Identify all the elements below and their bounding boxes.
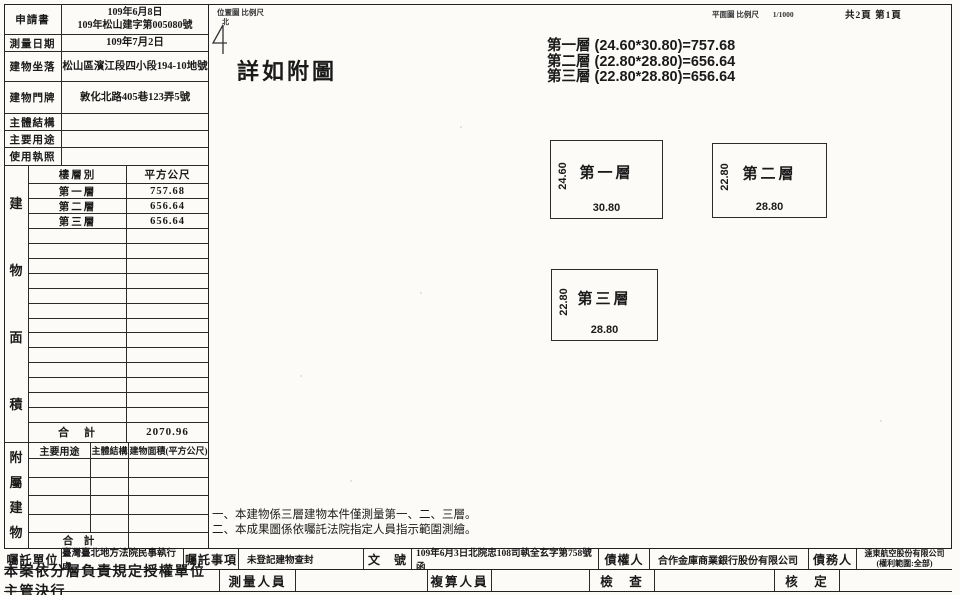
floor-name-cell: 第三層 bbox=[29, 214, 127, 228]
empty-cell bbox=[127, 333, 208, 347]
empty-cell bbox=[29, 244, 127, 258]
floor-name-cell: 第二層 bbox=[29, 199, 127, 213]
info-value: 109年7月2日 bbox=[62, 35, 208, 51]
empty-cell bbox=[127, 274, 208, 288]
approve-label: 核 定 bbox=[775, 570, 840, 591]
empty-cell bbox=[29, 348, 127, 362]
empty-row bbox=[29, 515, 208, 534]
empty-cell bbox=[127, 259, 208, 273]
empty-row bbox=[29, 378, 208, 393]
commission-matter-value: 未登記建物查封 bbox=[239, 549, 364, 569]
empty-cell bbox=[91, 515, 129, 533]
area-row-floor2: 第二層 656.64 bbox=[29, 199, 208, 214]
annex-table-side-label: 附屬建物 bbox=[4, 443, 29, 548]
surveyor-label: 測量人員 bbox=[220, 570, 296, 591]
floor-plan-rect-floor1: 第一層 24.60 30.80 bbox=[550, 140, 663, 219]
empty-row bbox=[29, 496, 208, 515]
empty-cell bbox=[29, 393, 127, 407]
empty-cell bbox=[29, 319, 127, 333]
floor-width-dimension: 28.80 bbox=[713, 201, 826, 213]
empty-cell bbox=[127, 363, 208, 377]
area-row-floor3: 第三層 656.64 bbox=[29, 214, 208, 229]
info-table: 申請書 109年6月8日 109年松山建字第005080號 測量日期 109年7… bbox=[4, 4, 208, 166]
info-value: 敦化北路405巷123弄5號 bbox=[62, 82, 208, 113]
col-header-floor: 樓層別 bbox=[29, 166, 127, 183]
info-value bbox=[62, 148, 208, 165]
info-label: 主要用途 bbox=[4, 131, 62, 147]
surveyor-value bbox=[296, 570, 428, 591]
note-line-2: 二、本成果圖係依囑託法院指定人員指示範圍測繪。 bbox=[212, 523, 477, 538]
area-row-floor1: 第一層 757.68 bbox=[29, 184, 208, 199]
creditor-value: 合作金庫商業銀行股份有限公司 bbox=[650, 549, 809, 569]
col-header-sqm: 平方公尺 bbox=[127, 166, 208, 183]
annex-building-table: 附屬建物 主要用途 主體結構 建物面積(平方公尺) 合 計 bbox=[4, 443, 208, 548]
area-table-grid: 樓層別 平方公尺 第一層 757.68 第二層 656.64 第三層 656.6… bbox=[29, 166, 208, 442]
document-number-label: 文 號 bbox=[364, 549, 412, 569]
floor-area-cell: 656.64 bbox=[127, 199, 208, 213]
info-label: 建物門牌 bbox=[4, 82, 62, 113]
empty-cell bbox=[127, 229, 208, 243]
inspect-label: 檢 查 bbox=[590, 570, 655, 591]
empty-row bbox=[29, 408, 208, 423]
empty-cell bbox=[91, 478, 129, 496]
empty-cell bbox=[127, 319, 208, 333]
creditor-label: 債權人 bbox=[599, 549, 650, 569]
inspect-value bbox=[655, 570, 775, 591]
scan-speck bbox=[350, 480, 352, 482]
empty-cell bbox=[129, 496, 208, 514]
floor-plan-rect-floor3: 第三層 22.80 28.80 bbox=[551, 269, 658, 341]
col-header-structure: 主體結構 bbox=[91, 443, 129, 458]
col-header-area-sqm: 建物面積(平方公尺) bbox=[129, 443, 208, 458]
total-value: 2070.96 bbox=[127, 423, 208, 442]
info-row-structure: 主體結構 bbox=[4, 114, 208, 131]
empty-row bbox=[29, 363, 208, 378]
empty-cell bbox=[129, 459, 208, 477]
area-table-header: 樓層別 平方公尺 bbox=[29, 166, 208, 184]
empty-cell bbox=[127, 378, 208, 392]
area-formulas: 第一層 (24.60*30.80)=757.68 第二層 (22.80*28.8… bbox=[547, 39, 735, 86]
empty-row bbox=[29, 289, 208, 304]
empty-row bbox=[29, 229, 208, 244]
document-number-value: 109年6月3日北院忠108司執全玄字第758號函 bbox=[412, 549, 599, 569]
empty-cell bbox=[129, 478, 208, 496]
empty-cell bbox=[29, 478, 91, 496]
empty-cell bbox=[129, 515, 208, 533]
empty-cell bbox=[127, 304, 208, 318]
empty-row bbox=[29, 459, 208, 478]
col-header-main-use: 主要用途 bbox=[29, 443, 91, 458]
empty-row bbox=[29, 259, 208, 274]
empty-cell bbox=[29, 408, 127, 422]
north-arrow-icon bbox=[209, 24, 235, 56]
empty-row bbox=[29, 304, 208, 319]
empty-row bbox=[29, 478, 208, 497]
scan-speck bbox=[300, 375, 302, 377]
info-value bbox=[62, 131, 208, 147]
floor-plan-rect-floor2: 第二層 22.80 28.80 bbox=[712, 143, 827, 218]
empty-cell bbox=[29, 274, 127, 288]
info-row-main-use: 主要用途 bbox=[4, 131, 208, 148]
floor-width-dimension: 30.80 bbox=[551, 202, 662, 214]
empty-row bbox=[29, 274, 208, 289]
floor-height-dimension: 24.60 bbox=[557, 162, 569, 190]
annex-table-header: 主要用途 主體結構 建物面積(平方公尺) bbox=[29, 443, 208, 459]
checker-value bbox=[492, 570, 590, 591]
empty-cell bbox=[127, 244, 208, 258]
info-row-application: 申請書 109年6月8日 109年松山建字第005080號 bbox=[4, 4, 208, 35]
floor-area-cell: 656.64 bbox=[127, 214, 208, 228]
scan-speck bbox=[460, 126, 462, 128]
floor-width-dimension: 28.80 bbox=[552, 324, 657, 336]
empty-cell bbox=[127, 348, 208, 362]
empty-row bbox=[29, 348, 208, 363]
scan-speck bbox=[420, 292, 422, 294]
empty-cell bbox=[29, 289, 127, 303]
info-value: 109年6月8日 109年松山建字第005080號 bbox=[62, 4, 208, 34]
building-area-table: 建物面積 樓層別 平方公尺 第一層 757.68 第二層 656.64 第三層 … bbox=[4, 166, 208, 443]
empty-cell bbox=[29, 378, 127, 392]
formula-floor1: 第一層 (24.60*30.80)=757.68 bbox=[547, 39, 735, 55]
plan-scale-label: 平面圖 比例尺 1/1000 bbox=[712, 9, 794, 20]
info-value: 松山區濱江段四小段194-10地號 bbox=[62, 52, 208, 81]
formula-floor3: 第三層 (22.80*28.80)=656.64 bbox=[547, 70, 735, 86]
floor-name-cell: 第一層 bbox=[29, 184, 127, 198]
page-count-label: 共2頁 第1頁 bbox=[845, 7, 902, 21]
formula-floor2: 第二層 (22.80*28.80)=656.64 bbox=[547, 55, 735, 71]
approve-value bbox=[840, 570, 952, 591]
annex-table-grid: 主要用途 主體結構 建物面積(平方公尺) 合 計 bbox=[29, 443, 208, 548]
footer-row-personnel: 本案依分層負責規定授權單位主管決行 測量人員 複算人員 檢 查 核 定 bbox=[4, 570, 952, 592]
info-label: 申請書 bbox=[4, 4, 62, 34]
total-label: 合 計 bbox=[29, 423, 127, 442]
empty-cell bbox=[29, 363, 127, 377]
empty-row bbox=[29, 393, 208, 408]
empty-row bbox=[29, 244, 208, 259]
area-total-row: 合 計 2070.96 bbox=[29, 423, 208, 442]
floor-height-dimension: 22.80 bbox=[719, 163, 731, 191]
empty-row bbox=[29, 319, 208, 334]
info-row-survey-date: 測量日期 109年7月2日 bbox=[4, 35, 208, 52]
info-label: 使用執照 bbox=[4, 148, 62, 165]
debtor-label: 債務人 bbox=[809, 549, 857, 569]
info-label: 測量日期 bbox=[4, 35, 62, 51]
empty-cell bbox=[29, 496, 91, 514]
empty-cell bbox=[127, 393, 208, 407]
empty-cell bbox=[29, 259, 127, 273]
empty-cell bbox=[91, 496, 129, 514]
info-label: 主體結構 bbox=[4, 114, 62, 130]
info-row-address: 建物門牌 敦化北路405巷123弄5號 bbox=[4, 82, 208, 114]
empty-cell bbox=[91, 459, 129, 477]
approval-statement: 本案依分層負責規定授權單位主管決行 bbox=[4, 570, 220, 591]
survey-notes: 一、本建物係三層建物本件僅測量第一、二、三層。 二、本成果圖係依囑託法院指定人員… bbox=[212, 508, 477, 537]
info-value bbox=[62, 114, 208, 130]
debtor-value: 遠東航空股份有限公司 (權利範圍:全部) bbox=[857, 549, 952, 569]
see-attached-figure-text: 詳如附圖 bbox=[237, 54, 337, 86]
empty-cell bbox=[127, 408, 208, 422]
empty-row bbox=[29, 333, 208, 348]
floor-height-dimension: 22.80 bbox=[558, 288, 570, 316]
info-label: 建物坐落 bbox=[4, 52, 62, 81]
empty-cell bbox=[29, 459, 91, 477]
scan-speck bbox=[880, 420, 882, 422]
plan-label-text: 平面圖 比例尺 bbox=[712, 10, 759, 19]
floor-area-cell: 757.68 bbox=[127, 184, 208, 198]
empty-cell bbox=[29, 229, 127, 243]
empty-cell bbox=[29, 304, 127, 318]
info-row-use-permit: 使用執照 bbox=[4, 148, 208, 166]
info-row-building-location: 建物坐落 松山區濱江段四小段194-10地號 bbox=[4, 52, 208, 82]
note-line-1: 一、本建物係三層建物本件僅測量第一、二、三層。 bbox=[212, 508, 477, 523]
empty-cell bbox=[29, 333, 127, 347]
left-info-panel: 申請書 109年6月8日 109年松山建字第005080號 測量日期 109年7… bbox=[4, 4, 209, 548]
empty-cell bbox=[29, 515, 91, 533]
checker-label: 複算人員 bbox=[428, 570, 492, 591]
building-survey-result-sheet: 申請書 109年6月8日 109年松山建字第005080號 測量日期 109年7… bbox=[0, 0, 960, 595]
empty-cell bbox=[127, 289, 208, 303]
area-table-side-label: 建物面積 bbox=[4, 166, 29, 442]
plan-scale-value: 1/1000 bbox=[773, 10, 794, 19]
